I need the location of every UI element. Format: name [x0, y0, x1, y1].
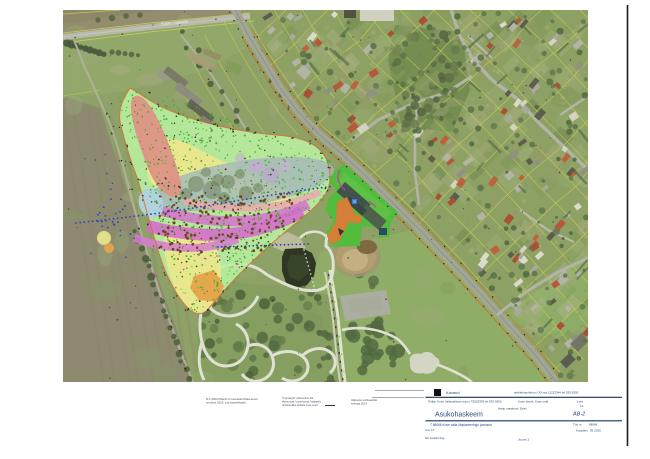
- svg-text:vers 1.0: vers 1.0: [425, 428, 435, 432]
- svg-text:T 68066 Kose valla üldplaneeri: T 68066 Kose valla üldplaneeringu joonis…: [430, 423, 492, 427]
- svg-text:Kavand: Kavand: [446, 390, 460, 395]
- svg-text:ortofotot 2019. a ja katastri: ortofotot 2019. a ja katastrikaarti: [206, 401, 246, 405]
- svg-text:Kuupäev: Kuupäev: [576, 429, 588, 433]
- svg-text:seisuga 2019: seisuga 2019: [351, 402, 367, 406]
- svg-text:Tingmargid: planeeritav ala: Tingmargid: planeeritav ala: [282, 396, 314, 400]
- svg-text:uhiskondlike ehitiste maa, tee: uhiskondlike ehitiste maa, teed: [282, 403, 318, 407]
- svg-text:05.2020: 05.2020: [590, 429, 601, 433]
- svg-text:Leht: Leht: [577, 400, 583, 404]
- svg-text:elamumaa, tootmismaa, haljasal: elamumaa, tootmismaa, haljasala,: [282, 399, 322, 403]
- svg-text:AB-2: AB-2: [572, 412, 585, 418]
- svg-text:Asukohaskeem: Asukohaskeem: [435, 412, 483, 419]
- svg-text:Kose alevik, Kose vald: Kose alevik, Kose vald: [518, 400, 549, 404]
- svg-text:Töö nr: Töö nr: [573, 423, 582, 427]
- svg-text:Valjavote pohikaardist: Valjavote pohikaardist: [351, 398, 377, 402]
- svg-text:Joonis 2: Joonis 2: [518, 438, 530, 442]
- svg-text:68066: 68066: [589, 423, 598, 427]
- svg-text:fail: asukoht.dwg: fail: asukoht.dwg: [425, 436, 445, 440]
- svg-text:1/1: 1/1: [580, 404, 584, 408]
- svg-text:Tellija: Kose Vallavalitsus r: Tellija: Kose Vallavalitsus reg.nr 75023…: [428, 400, 502, 404]
- svg-text:arhitektuuribüroo OÜ reg 1122: arhitektuuribüroo OÜ reg 11223344 tel 55…: [514, 391, 579, 395]
- svg-text:Harju maakond, Eesti: Harju maakond, Eesti: [498, 407, 527, 411]
